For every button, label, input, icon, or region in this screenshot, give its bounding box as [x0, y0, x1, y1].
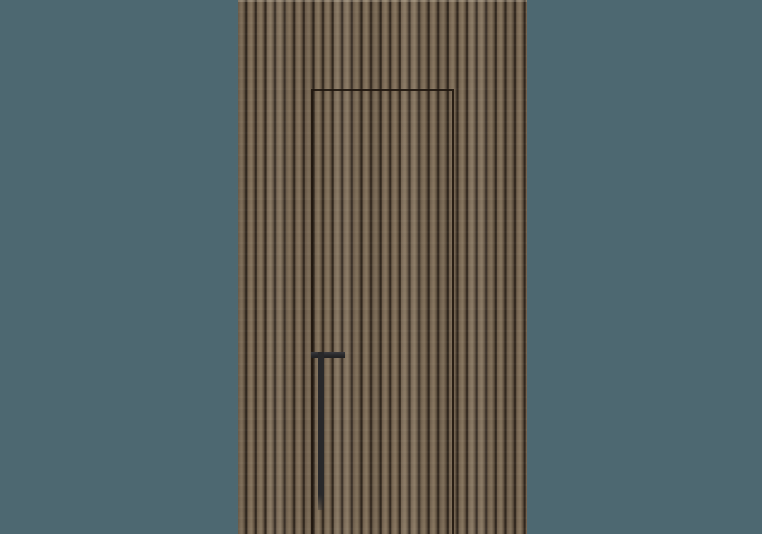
- door-handle-cap: [311, 352, 345, 358]
- door-handle-grip: [318, 352, 324, 510]
- wood-slat-panel: [238, 0, 527, 534]
- scene-backdrop: [0, 0, 762, 534]
- concealed-flush-door: [311, 89, 454, 534]
